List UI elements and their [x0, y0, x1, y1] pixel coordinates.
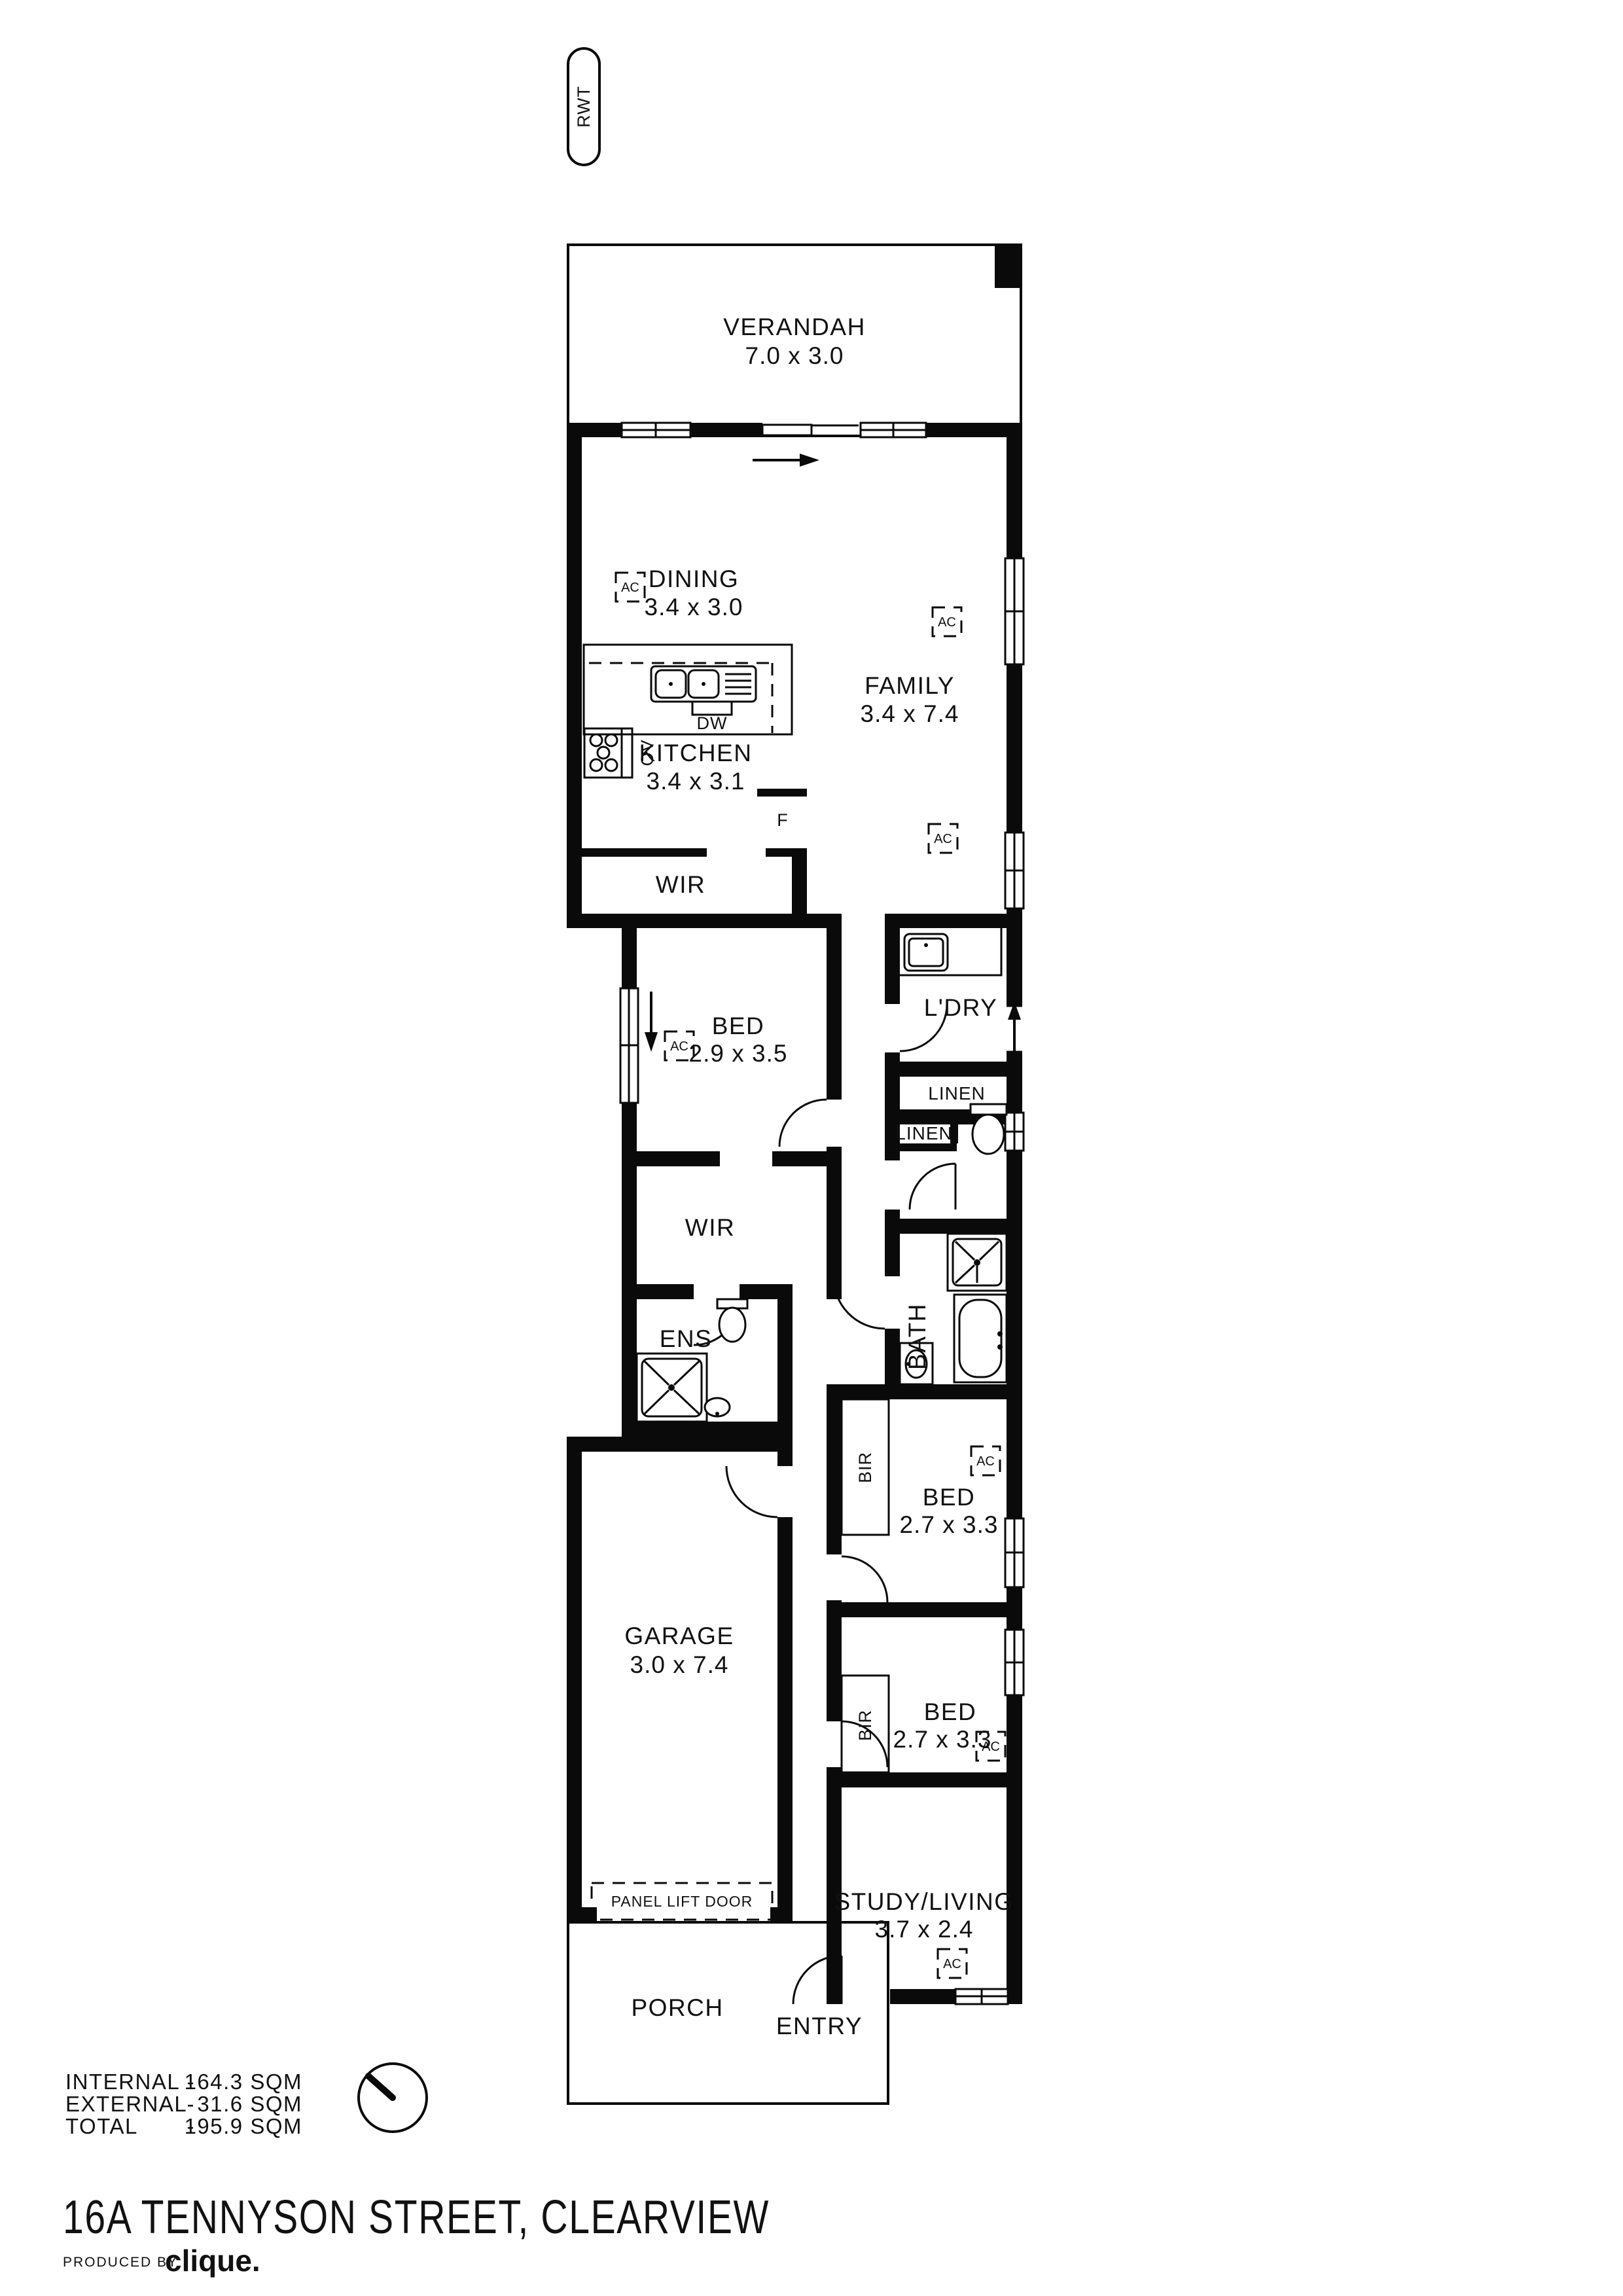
ac-study: AC: [938, 1949, 967, 1978]
external-value: 31.6 SQM: [197, 2092, 302, 2116]
ac-dining: AC: [616, 573, 645, 601]
linen-hall-label: LINEN: [928, 1083, 985, 1103]
wir-main-label: WIR: [685, 1214, 735, 1241]
ens-label: ENS: [660, 1325, 713, 1352]
garage-dims: 3.0 x 7.4: [630, 1651, 729, 1678]
floorplan-canvas: RWT: [0, 0, 1623, 2296]
bed3-dims: 2.7 x 3.3: [893, 1726, 992, 1753]
door-garage: [726, 1466, 777, 1517]
laundry-label: L'DRY: [924, 994, 998, 1021]
external-label: EXTERNAL: [65, 2092, 187, 2116]
bed2-label: BED: [923, 1484, 976, 1511]
window-front-1: [622, 423, 690, 437]
rainwater-tank: RWT: [568, 48, 599, 165]
window-family-2: [1005, 833, 1024, 908]
area-summary: INTERNAL - 164.3 SQM EXTERNAL - 31.6 SQM…: [65, 2070, 302, 2138]
window-bed-main: [620, 988, 638, 1103]
ac-bed2: AC: [971, 1446, 1000, 1475]
bed-main-dims: 2.9 x 3.5: [689, 1040, 788, 1067]
ens-basin-icon: [705, 1398, 730, 1416]
svg-text:AC: AC: [976, 1454, 995, 1469]
compass-icon: [359, 2064, 427, 2132]
verandah-dims: 7.0 x 3.0: [745, 342, 844, 369]
garage-label: GARAGE: [624, 1623, 734, 1649]
total-label: TOTAL: [65, 2114, 138, 2138]
family-label: FAMILY: [865, 672, 955, 699]
dining-dims: 3.4 x 3.0: [645, 594, 743, 620]
porch-label: PORCH: [631, 1994, 723, 2021]
external-sep: -: [187, 2092, 194, 2116]
svg-text:AC: AC: [621, 581, 639, 595]
kitchen-label: KITCHEN: [639, 740, 753, 766]
internal-label: INTERNAL: [65, 2070, 180, 2094]
bir-bed3-label: BIR: [855, 1710, 875, 1741]
ac-family-upper: AC: [933, 607, 961, 636]
laundry-exit-arrow: [1008, 1001, 1021, 1052]
window-study: [955, 1989, 1008, 2004]
window-family-1: [1005, 558, 1024, 664]
kitchen-sink-icon: [651, 666, 756, 702]
dishwasher-label: DW: [697, 713, 728, 733]
bath-shower-icon: [948, 1234, 1007, 1291]
svg-text:AC: AC: [934, 832, 952, 846]
produced-by-label: PRODUCED BY: [63, 2255, 178, 2270]
bathtub-icon: [954, 1295, 1007, 1382]
total-value: 195.9 SQM: [185, 2114, 302, 2138]
family-dims: 3.4 x 7.4: [861, 700, 959, 727]
svg-text:AC: AC: [938, 615, 956, 630]
verandah-corner-pier: [995, 243, 1022, 288]
window-bed2: [1005, 1518, 1024, 1587]
panel-lift-door-label: PANEL LIFT DOOR: [611, 1893, 753, 1910]
study-label: STUDY/LIVING: [834, 1888, 1014, 1915]
window-bed3: [1005, 1630, 1024, 1695]
ac-family-lower: AC: [929, 824, 957, 853]
brand-logo: clique.: [165, 2244, 260, 2278]
kitchen-dims: 3.4 x 3.1: [647, 768, 745, 795]
walls: [567, 423, 1022, 2004]
fridge-label: F: [777, 810, 789, 830]
cooktop-icon: [584, 728, 622, 778]
door-bed-main: [779, 1100, 827, 1147]
verandah-outline: [568, 245, 1021, 436]
study-dims: 3.7 x 2.4: [875, 1916, 974, 1943]
bath-label: BATH: [904, 1303, 931, 1370]
bed-main-label: BED: [712, 1013, 765, 1039]
sliding-door-panel: [762, 425, 859, 435]
door-wc: [910, 1164, 955, 1210]
ens-shower-icon: [637, 1354, 707, 1422]
bed3-label: BED: [924, 1698, 977, 1725]
bed-main-entry-arrow: [645, 992, 658, 1052]
bir-bed2-label: BIR: [855, 1452, 875, 1483]
oven-icon: [622, 728, 632, 778]
page-title: 16A TENNYSON STREET, CLEARVIEW: [63, 2191, 770, 2244]
laundry-trough-icon: [904, 934, 948, 971]
door-bed2: [842, 1556, 887, 1602]
dining-label: DINING: [649, 565, 740, 592]
windows: [620, 423, 1024, 2004]
svg-text:AC: AC: [943, 1957, 961, 1971]
verandah-label: VERANDAH: [723, 314, 866, 340]
wc-toilet-icon: [971, 1104, 1007, 1154]
svg-text:AC: AC: [670, 1039, 688, 1054]
window-wc: [1005, 1113, 1024, 1151]
ens-toilet-icon: [717, 1299, 747, 1342]
rwt-label: RWT: [574, 86, 594, 128]
wir-kitchen-label: WIR: [656, 871, 705, 898]
dishwasher-icon: [692, 702, 732, 715]
producer-credit: PRODUCED BY clique.: [63, 2244, 260, 2278]
internal-value: 164.3 SQM: [185, 2070, 302, 2094]
entry-label: ENTRY: [776, 2013, 863, 2039]
bed2-dims: 2.7 x 3.3: [900, 1511, 999, 1538]
linen-wc-label: LINEN: [895, 1123, 952, 1143]
window-front-2: [861, 423, 926, 437]
sliding-door-arrow: [753, 454, 819, 467]
